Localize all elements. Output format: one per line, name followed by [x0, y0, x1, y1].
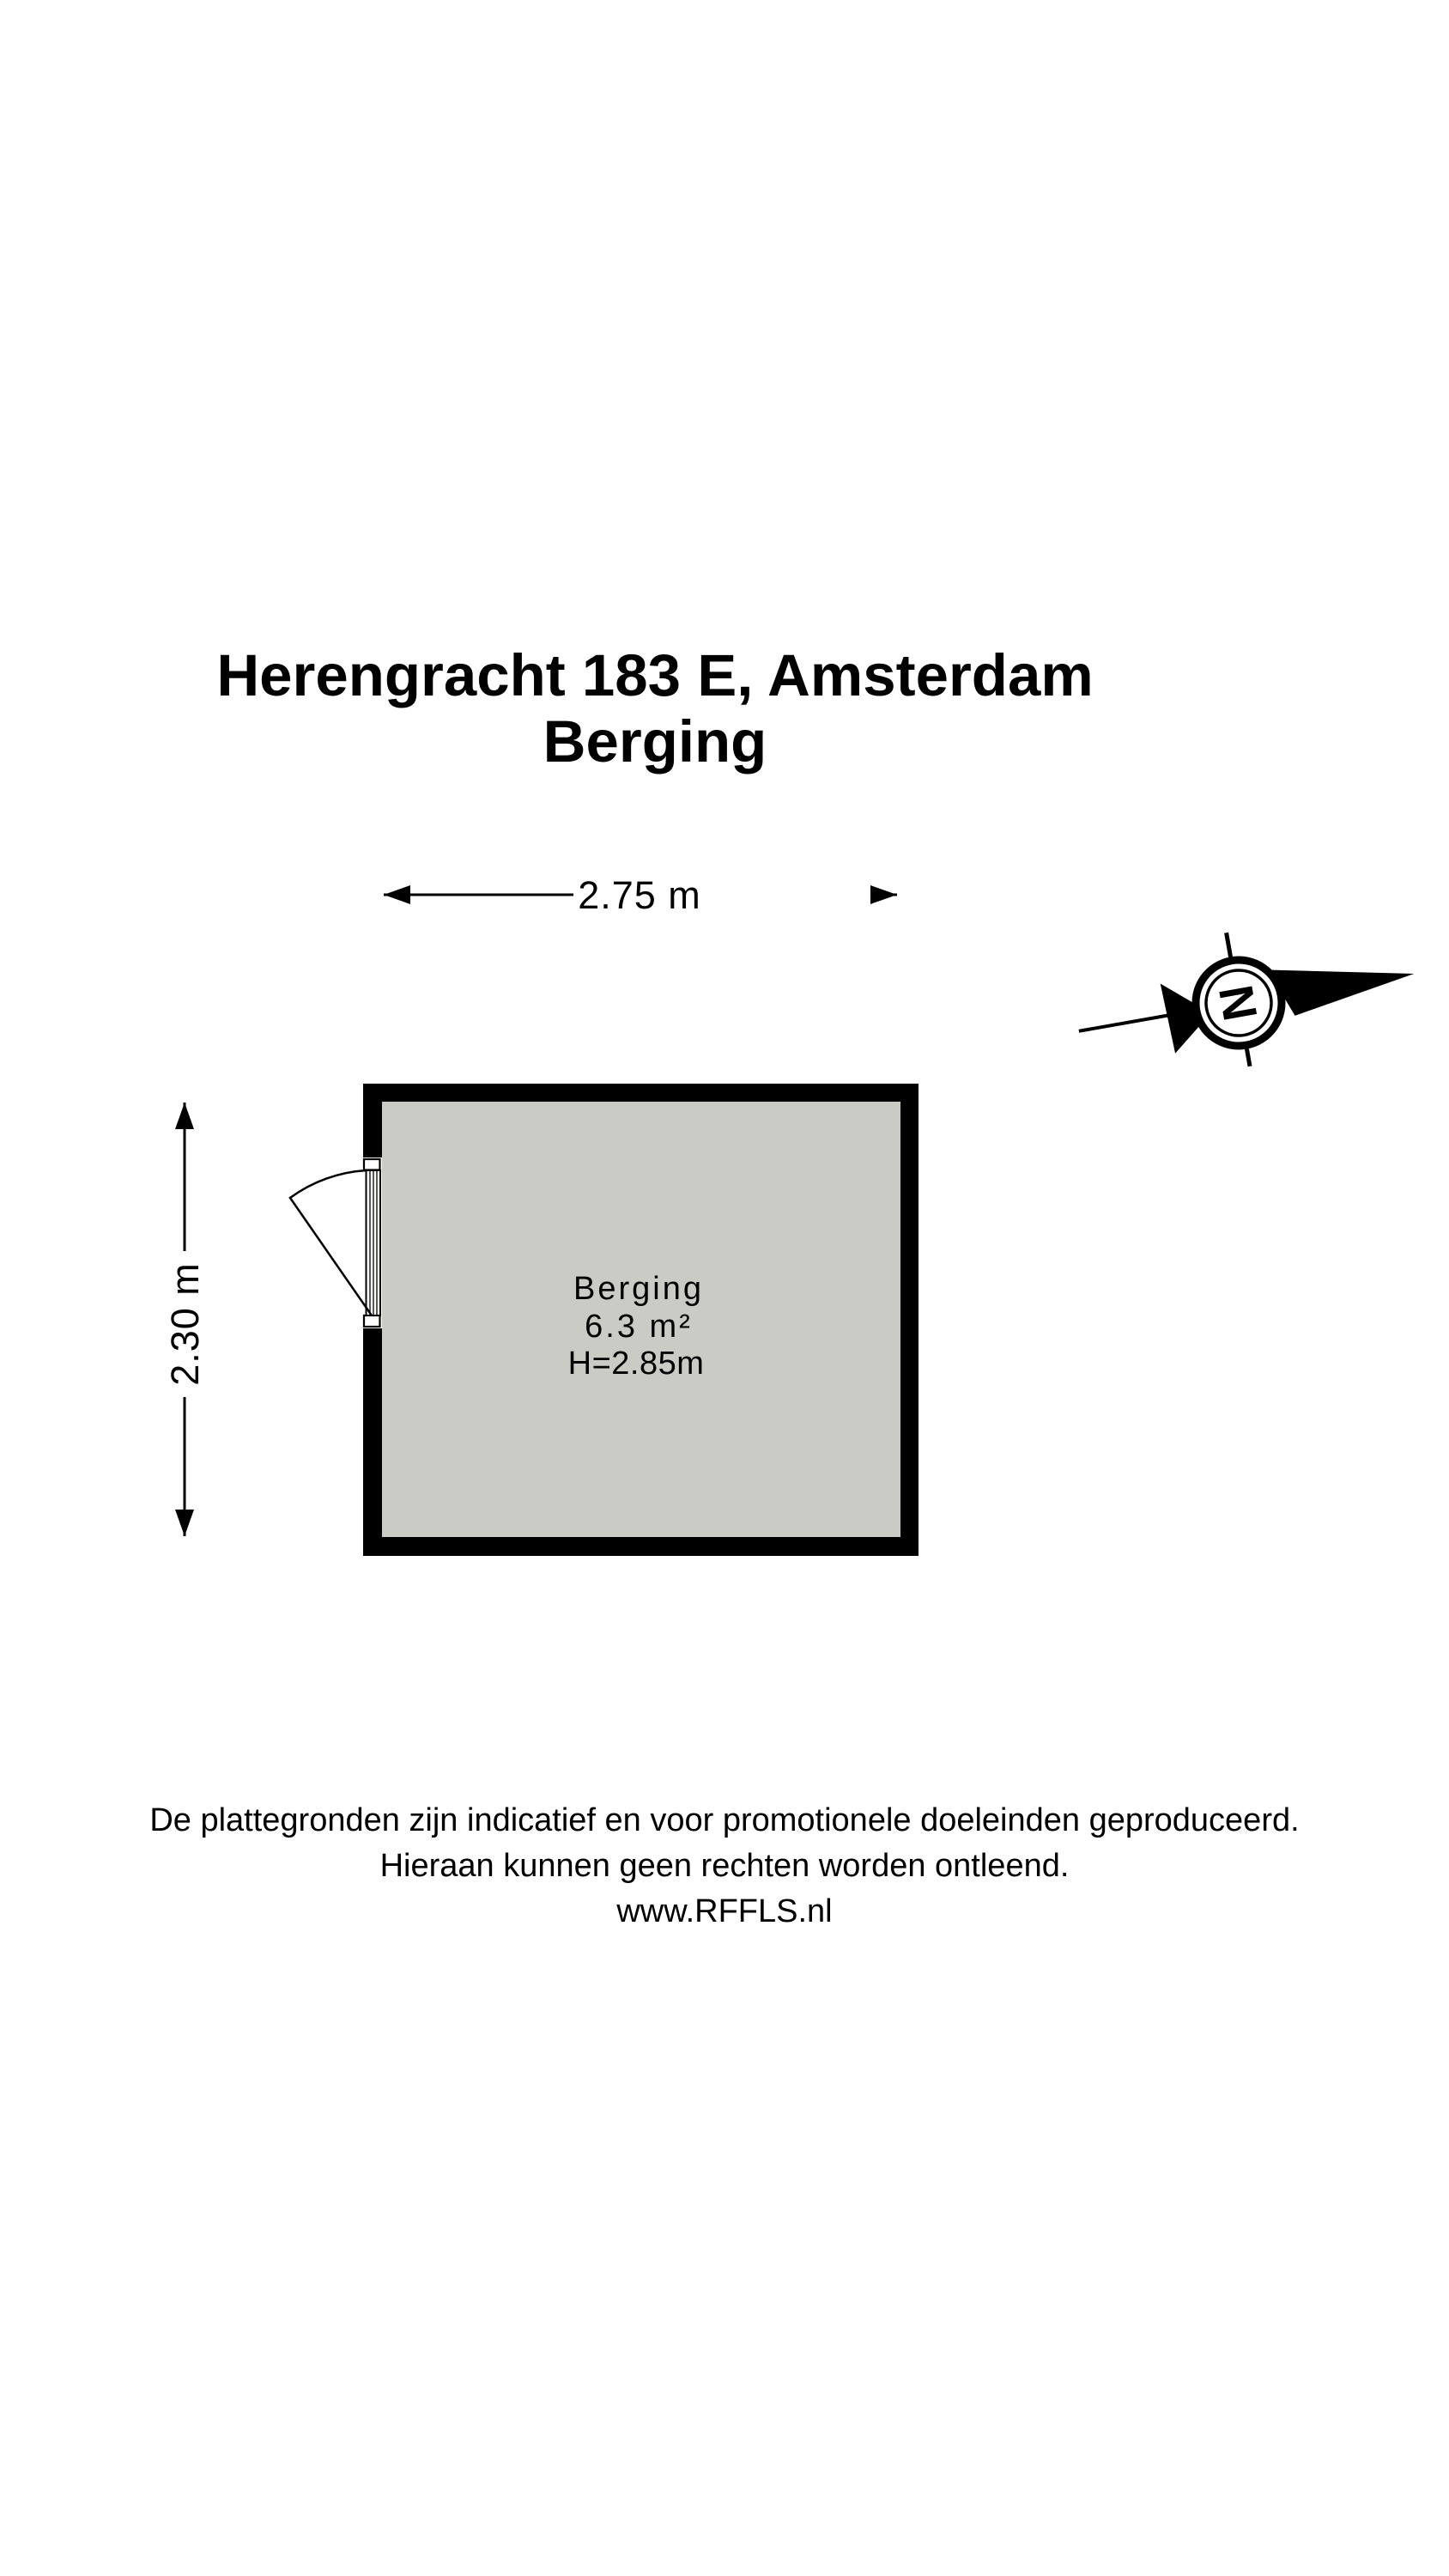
north-arrow-compass: N [1066, 902, 1424, 1094]
wall-bottom [363, 1537, 919, 1556]
height-dimension-label: 2.30 m [163, 1262, 207, 1386]
width-dimension: 2.75 m [384, 873, 897, 917]
width-dimension-label: 2.75 m [578, 873, 701, 917]
width-arrowhead-right [870, 885, 897, 904]
room-label-ceiling-height: H=2.85m [568, 1346, 705, 1382]
door-swing-arc [290, 1170, 372, 1315]
footer-line-1: De plattegronden zijn indicatief en voor… [0, 1798, 1449, 1844]
footer-line-2: Hieraan kunnen geen rechten worden ontle… [0, 1844, 1449, 1889]
wall-right [900, 1084, 919, 1556]
compass-north-arrowhead [1268, 945, 1418, 1019]
floorplan-page: Herengracht 183 E, Amsterdam Berging 2.7… [0, 0, 1449, 2576]
door-jamb-top [364, 1159, 380, 1170]
wall-left-upper [363, 1084, 382, 1157]
height-arrowhead-bottom [175, 1510, 194, 1536]
height-dimension: 2.30 m [163, 1103, 207, 1536]
wall-left-lower [363, 1328, 382, 1556]
room-label-name: Berging [573, 1271, 704, 1307]
floorplan-drawing: 2.75 m 2.30 m Berging 6.3 m² H=2.85m N [0, 0, 1449, 1717]
footer-disclaimer: De plattegronden zijn indicatief en voor… [0, 1798, 1449, 1935]
door-jamb-bottom [364, 1315, 380, 1327]
wall-top [363, 1084, 919, 1102]
width-arrowhead-left [384, 885, 410, 904]
height-arrowhead-top [175, 1103, 194, 1129]
room-label-area: 6.3 m² [585, 1309, 693, 1345]
footer-website: www.RFFLS.nl [0, 1889, 1449, 1935]
